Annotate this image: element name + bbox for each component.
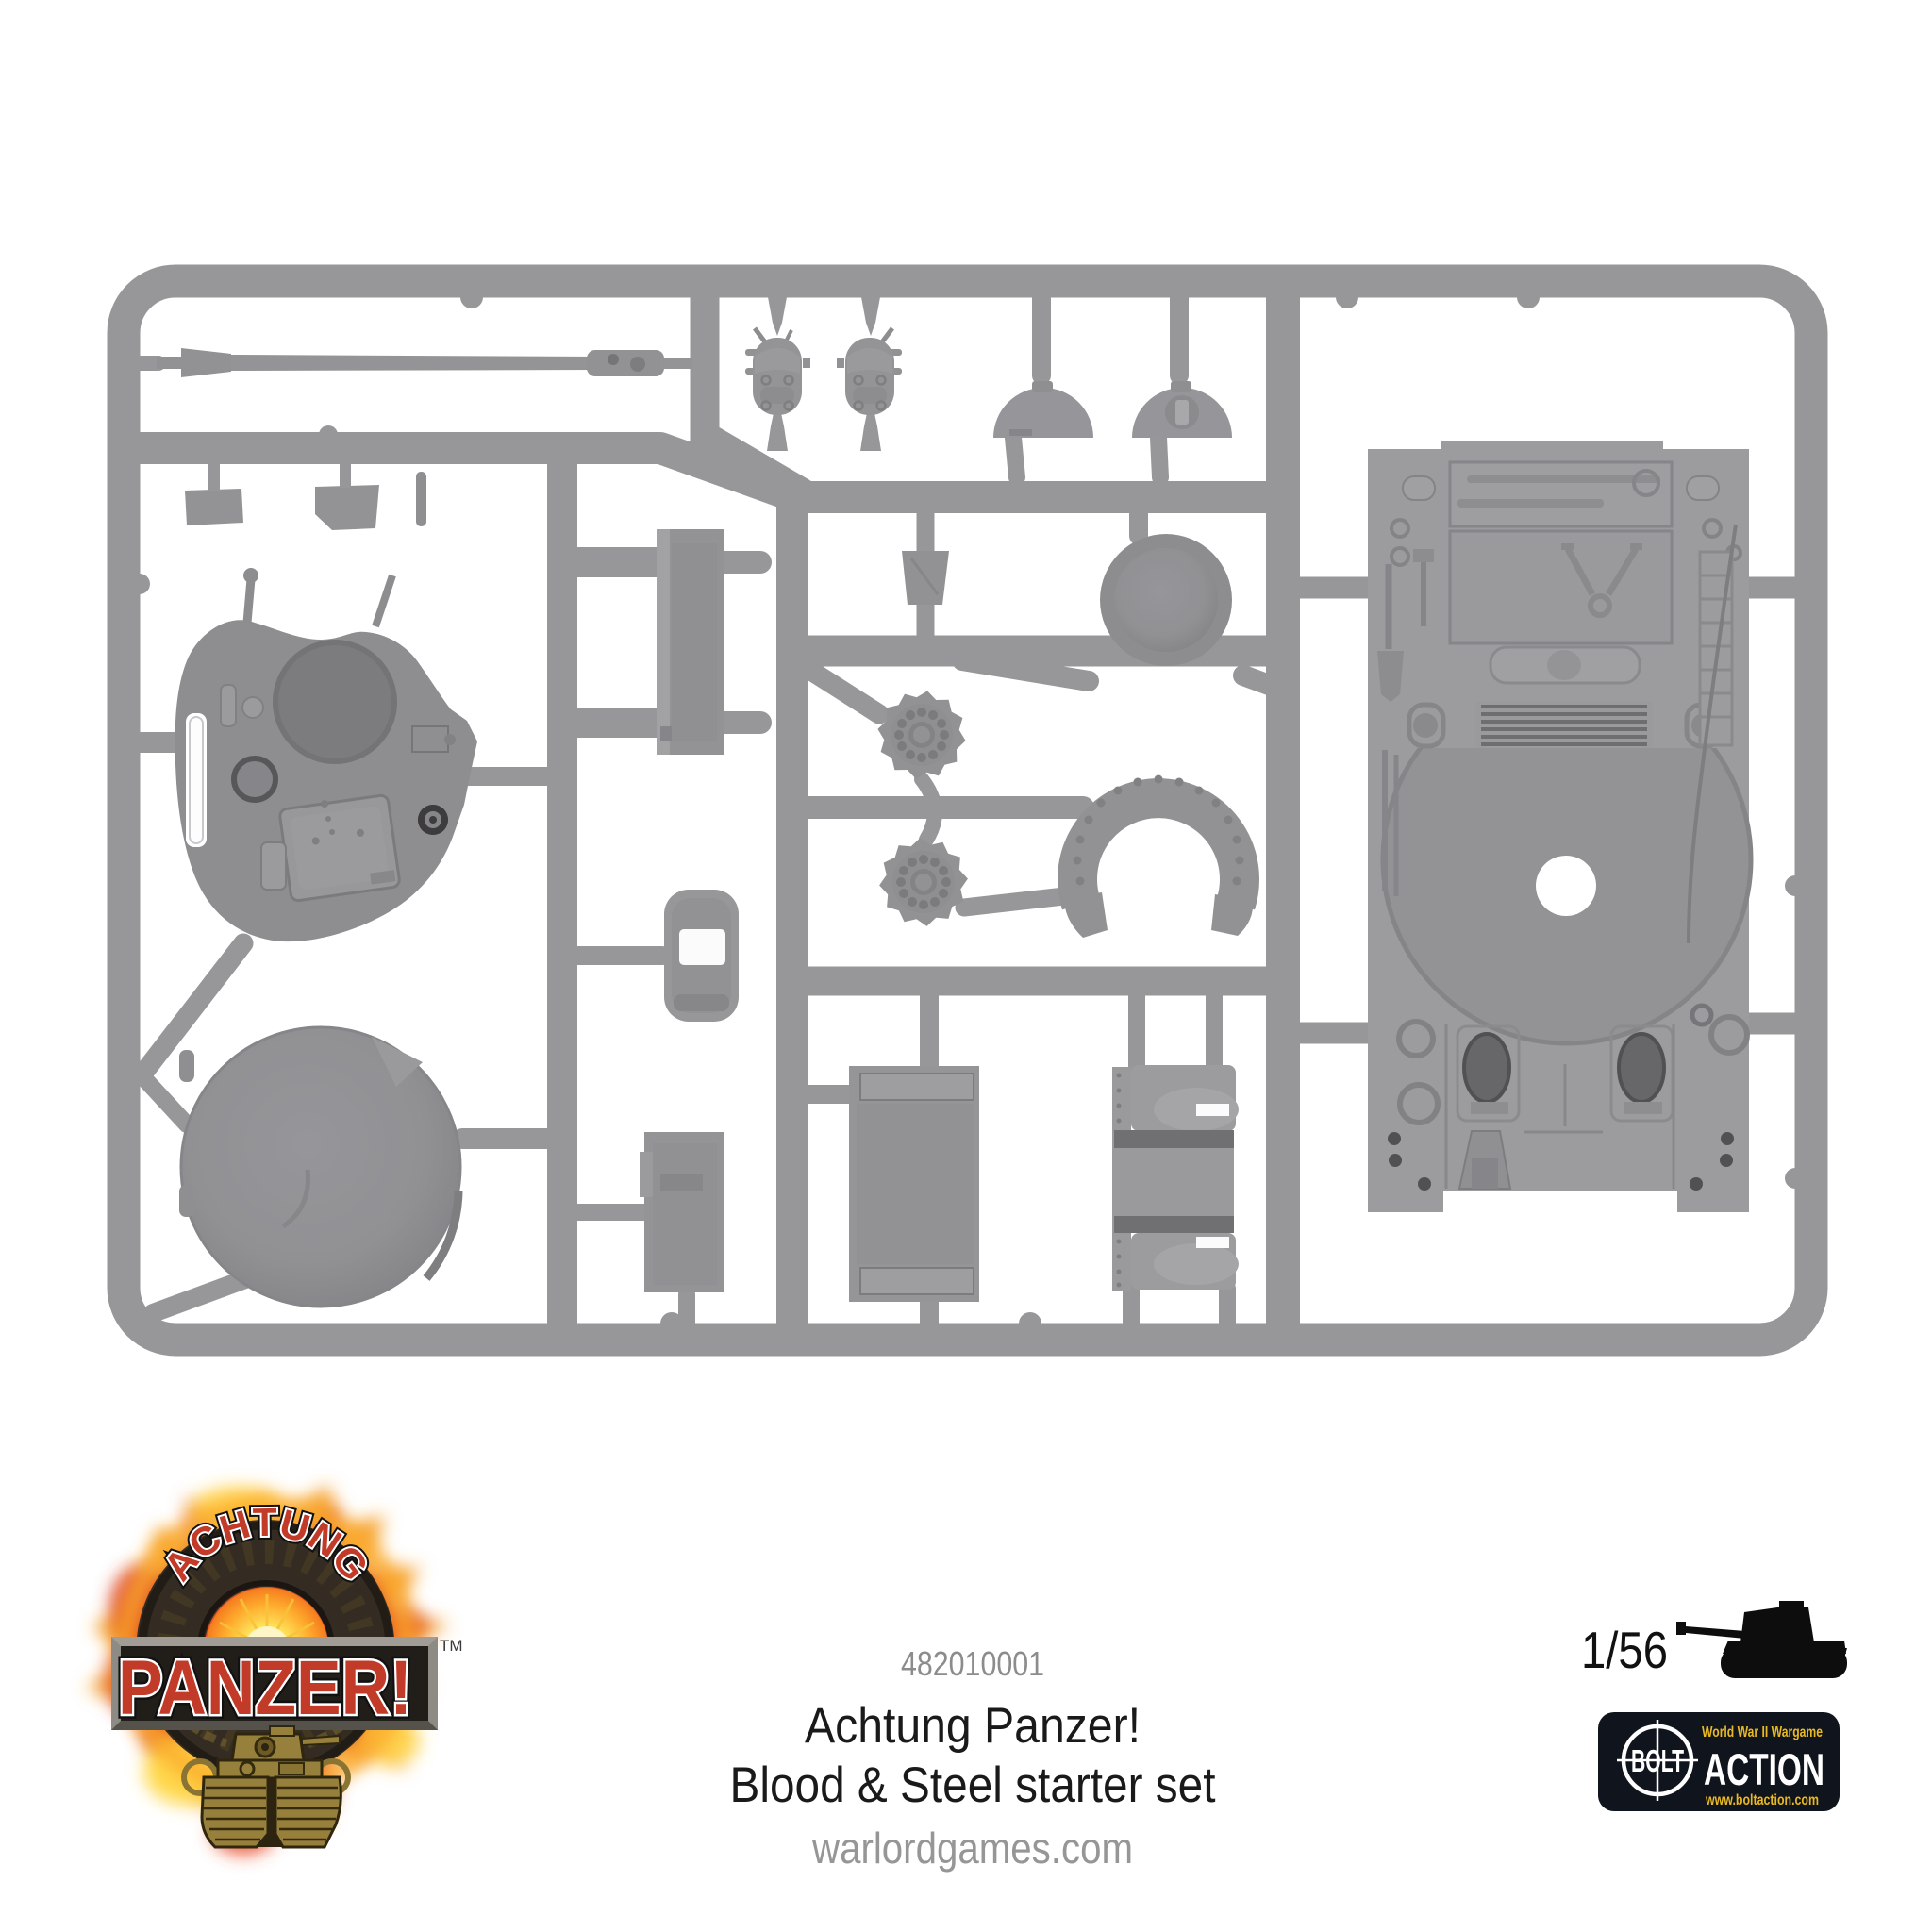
svg-text:TM: TM [440, 1637, 463, 1655]
svg-text:World War II Wargame: World War II Wargame [1702, 1724, 1823, 1740]
svg-text:PANZER!: PANZER! [118, 1645, 412, 1731]
svg-text:www.boltaction.com: www.boltaction.com [1705, 1792, 1819, 1808]
svg-text:Blood & Steel starter set: Blood & Steel starter set [730, 1757, 1216, 1813]
svg-text:1/56: 1/56 [1581, 1621, 1668, 1679]
svg-text:482010001: 482010001 [901, 1644, 1044, 1683]
svg-text:ACTION: ACTION [1704, 1744, 1824, 1794]
svg-text:BOLT: BOLT [1631, 1743, 1684, 1778]
svg-text:Achtung Panzer!: Achtung Panzer! [805, 1698, 1141, 1754]
svg-text:warlordgames.com: warlordgames.com [811, 1824, 1133, 1873]
